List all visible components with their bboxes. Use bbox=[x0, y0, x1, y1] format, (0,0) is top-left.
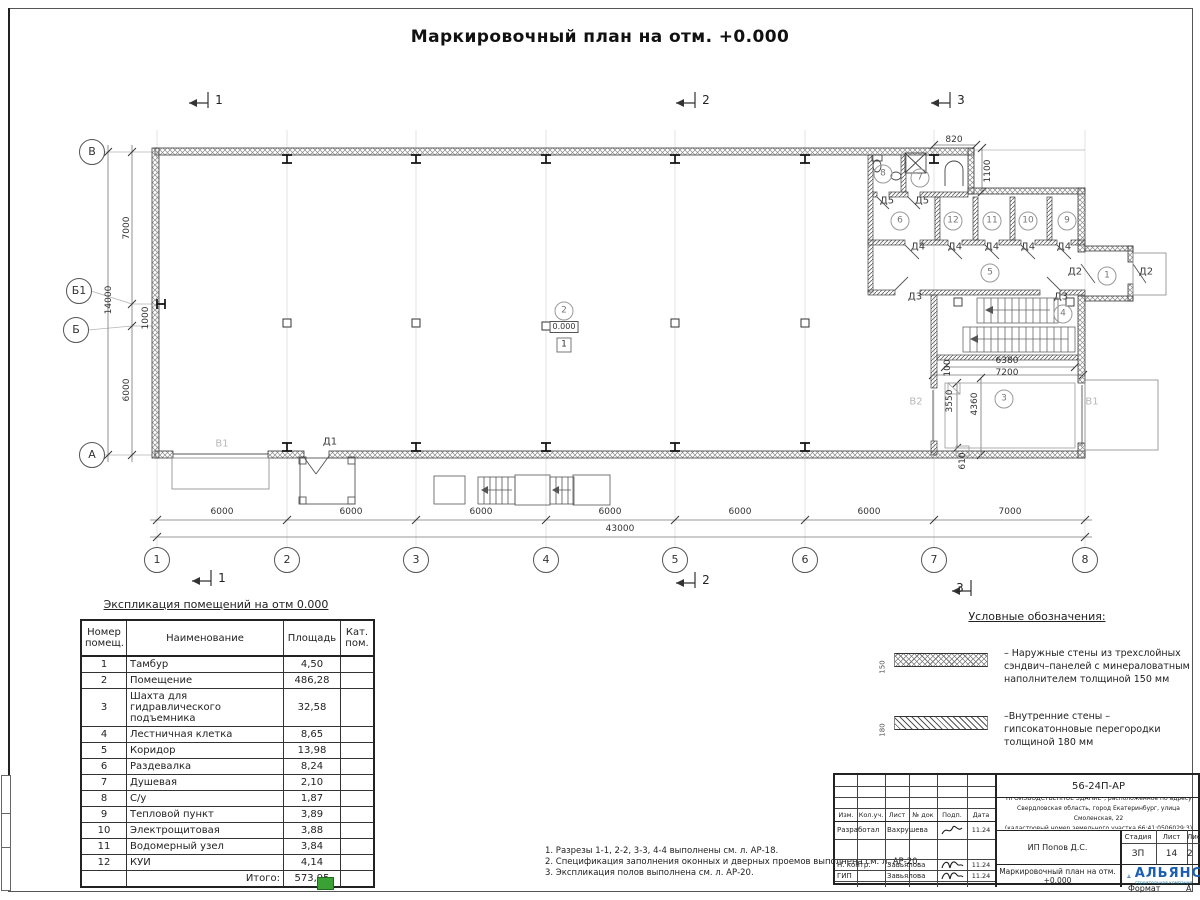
exterior-walls bbox=[152, 148, 1133, 458]
room-area: 13,98 bbox=[284, 743, 341, 759]
wc-fixtures bbox=[872, 153, 963, 186]
legend-line: гипсокатонновые перегородки bbox=[1004, 723, 1161, 736]
company-logo: АЛЬЯНС строительная компания bbox=[1127, 867, 1200, 885]
signature-icon bbox=[939, 821, 965, 839]
sign-name: Вахрушева bbox=[887, 821, 937, 839]
legend-line: сэндвич–панелей с минераловатным bbox=[1004, 660, 1190, 673]
legend-line: наполнителем толщиной 150 мм bbox=[1004, 673, 1190, 686]
room-schedule-body: 1Тамбур4,502Помещение486,283Шахта для ги… bbox=[81, 656, 374, 887]
room-area: 8,24 bbox=[284, 759, 341, 775]
legend-item-exterior-wall: 150 – Наружные стены из трехслойных сэнд… bbox=[878, 647, 1196, 686]
room-area: 4,14 bbox=[284, 855, 341, 871]
section-arrow bbox=[189, 99, 197, 107]
stair-arrow bbox=[970, 335, 978, 343]
table-row: 10Электрощитовая3,88 bbox=[81, 823, 374, 839]
room-name: Тамбур bbox=[127, 656, 284, 673]
room-category bbox=[341, 791, 375, 807]
title-block: Изм. Кол.уч. Лист № док Подп. Дата Разра… bbox=[833, 773, 1200, 885]
loading-dock bbox=[172, 458, 269, 489]
room-name: Раздевалка bbox=[127, 759, 284, 775]
room-name: Лестничная клетка bbox=[127, 727, 284, 743]
logo-name: АЛЬЯНС bbox=[1135, 867, 1200, 881]
room-number: 3 bbox=[81, 689, 127, 727]
dimension-lines bbox=[108, 145, 1092, 537]
sign-name: Завьялова bbox=[887, 870, 937, 881]
legend-text: – Наружные стены из трехслойных сэндвич–… bbox=[1004, 647, 1190, 686]
arch-niche bbox=[945, 161, 963, 186]
legend-title: Условные обозначения: bbox=[878, 610, 1196, 623]
sign-date: 11.24 bbox=[967, 859, 995, 870]
section-arrow bbox=[676, 99, 684, 107]
room-schedule-table: Номер помещ. Наименование Площадь Кат. п… bbox=[80, 619, 375, 888]
table-row: 8С/у1,87 bbox=[81, 791, 374, 807]
toilet-icon bbox=[873, 160, 881, 172]
project-description: "ПРОИЗВОДСТВЕННОЕ ЗДАНИЕ", расположенное… bbox=[997, 798, 1200, 829]
stair-arrow bbox=[985, 306, 993, 314]
column-header-area: Площадь bbox=[284, 620, 341, 656]
table-row: 2Помещение486,28 bbox=[81, 673, 374, 689]
room-number: 10 bbox=[81, 823, 127, 839]
col-ndok: № док bbox=[909, 808, 937, 821]
legend-dim: 180 bbox=[879, 723, 887, 736]
room-number: 6 bbox=[81, 759, 127, 775]
room-category bbox=[341, 689, 375, 727]
room-category bbox=[341, 807, 375, 823]
format-value: А bbox=[1186, 884, 1191, 893]
sheets-label: Листов bbox=[1187, 830, 1200, 843]
room-number: 5 bbox=[81, 743, 127, 759]
stage-label: Стадия bbox=[1120, 830, 1156, 843]
room-name: С/у bbox=[127, 791, 284, 807]
room-number: 8 bbox=[81, 791, 127, 807]
col-data: Дата bbox=[967, 808, 995, 821]
format-label: Формат bbox=[1128, 884, 1160, 893]
stair-arrow bbox=[481, 486, 488, 494]
sign-date: 11.24 bbox=[967, 870, 995, 881]
margin-box bbox=[1, 813, 11, 849]
interior-partitions bbox=[868, 155, 1085, 455]
legend-line: толщиной 180 мм bbox=[1004, 736, 1161, 749]
room-area: 3,84 bbox=[284, 839, 341, 855]
legend-line: – Наружные стены из трехслойных bbox=[1004, 647, 1190, 660]
legend-item-interior-wall: 180 –Внутренние стены – гипсокатонновые … bbox=[878, 710, 1196, 749]
room-name: КУИ bbox=[127, 855, 284, 871]
room-category bbox=[341, 673, 375, 689]
column-header-category: Кат. пом. bbox=[341, 620, 375, 656]
column-header-number: Номер помещ. bbox=[81, 620, 127, 656]
margin-box bbox=[1, 847, 11, 891]
room-number: 2 bbox=[81, 673, 127, 689]
signature-icon bbox=[939, 859, 965, 870]
room-number: 7 bbox=[81, 775, 127, 791]
room-category bbox=[341, 727, 375, 743]
logo-triangle-icon bbox=[1127, 868, 1131, 884]
sign-name: Завьялова bbox=[887, 859, 937, 870]
legend-line: –Внутренние стены – bbox=[1004, 710, 1161, 723]
table-row: 9Тепловой пункт3,89 bbox=[81, 807, 374, 823]
cabinet bbox=[1066, 298, 1074, 306]
table-row: 12КУИ4,14 bbox=[81, 855, 374, 871]
lift-shaft-pit bbox=[945, 383, 1075, 456]
room-area: 3,89 bbox=[284, 807, 341, 823]
signature-icon bbox=[939, 870, 965, 881]
sink-icon bbox=[891, 172, 901, 180]
entrance-canopy bbox=[299, 457, 355, 504]
legend: Условные обозначения: 150 – Наружные сте… bbox=[878, 610, 1196, 749]
client-name: ИП Попов Д.С. bbox=[995, 830, 1120, 864]
room-category bbox=[341, 855, 375, 871]
table-row: 4Лестничная клетка8,65 bbox=[81, 727, 374, 743]
room-area: 32,58 bbox=[284, 689, 341, 727]
loading-dock-right bbox=[1085, 380, 1158, 450]
total-label: Итого: bbox=[127, 871, 284, 888]
room-area: 486,28 bbox=[284, 673, 341, 689]
floor-plan-drawing bbox=[0, 0, 1200, 620]
door-swings bbox=[173, 197, 1146, 474]
room-number: 9 bbox=[81, 807, 127, 823]
section-arrow bbox=[952, 587, 960, 595]
room-area: 4,50 bbox=[284, 656, 341, 673]
drawing-sheet: Маркировочный план на отм. +0.000 bbox=[0, 0, 1200, 900]
room-name: Шахта для гидравлического подъемника bbox=[127, 689, 284, 727]
room-category bbox=[341, 823, 375, 839]
table-row: 11Водомерный узел3,84 bbox=[81, 839, 374, 855]
interior-wall-swatch bbox=[894, 716, 988, 730]
cabinet bbox=[954, 298, 962, 306]
room-category bbox=[341, 743, 375, 759]
desc-line: (кадастровый номер земельного участка 66… bbox=[1005, 824, 1192, 830]
room-number: 11 bbox=[81, 839, 127, 855]
sign-role: ГИП bbox=[837, 870, 885, 881]
section-marks bbox=[189, 92, 971, 596]
room-area: 1,87 bbox=[284, 791, 341, 807]
total-spacer bbox=[81, 871, 127, 888]
sheet-number: 14 bbox=[1156, 843, 1187, 864]
room-name: Водомерный узел bbox=[127, 839, 284, 855]
stairs-interior bbox=[963, 298, 1075, 352]
room-category bbox=[341, 656, 375, 673]
col-list: Лист bbox=[885, 808, 909, 821]
document-code: 56-24П-АР bbox=[995, 775, 1200, 797]
drawing-title: Маркировочный план на отм. +0.000 bbox=[995, 864, 1120, 887]
exterior-wall-swatch bbox=[894, 653, 988, 667]
legend-dim: 150 bbox=[879, 660, 887, 673]
room-number: 4 bbox=[81, 727, 127, 743]
table-row: 5Коридор13,98 bbox=[81, 743, 374, 759]
sign-role: Разработал bbox=[837, 821, 885, 839]
stair-arrow bbox=[552, 486, 559, 494]
section-arrow bbox=[676, 579, 684, 587]
section-arrow bbox=[931, 99, 939, 107]
entry-porch bbox=[1133, 253, 1166, 295]
room-name: Коридор bbox=[127, 743, 284, 759]
sheet-label: Лист bbox=[1156, 830, 1187, 843]
room-category bbox=[341, 759, 375, 775]
section-arrow bbox=[192, 577, 200, 585]
room-name: Электрощитовая bbox=[127, 823, 284, 839]
desc-line: Свердловская область, город Екатеринбург… bbox=[997, 804, 1200, 824]
table-row: 3Шахта для гидравлического подъемника32,… bbox=[81, 689, 374, 727]
col-izm: Изм. bbox=[835, 808, 857, 821]
margin-box bbox=[1, 775, 11, 815]
room-name: Тепловой пункт bbox=[127, 807, 284, 823]
dimension-ticks bbox=[104, 141, 1089, 541]
room-schedule: Экспликация помещений на отм 0.000 Номер… bbox=[80, 598, 352, 888]
room-name: Душевая bbox=[127, 775, 284, 791]
stage-value: ЗП bbox=[1120, 843, 1156, 864]
col-podp: Подп. bbox=[937, 808, 967, 821]
green-marker bbox=[317, 877, 334, 890]
table-row: 7Душевая2,10 bbox=[81, 775, 374, 791]
sign-role: Н. контр. bbox=[837, 859, 885, 870]
col-koluch: Кол.уч. bbox=[857, 808, 885, 821]
table-row: 1Тамбур4,50 bbox=[81, 656, 374, 673]
room-area: 2,10 bbox=[284, 775, 341, 791]
room-number: 12 bbox=[81, 855, 127, 871]
room-number: 1 bbox=[81, 656, 127, 673]
exterior-stairs bbox=[434, 475, 610, 505]
room-area: 8,65 bbox=[284, 727, 341, 743]
room-schedule-title: Экспликация помещений на отм 0.000 bbox=[80, 598, 352, 611]
total-category bbox=[341, 871, 375, 888]
room-area: 3,88 bbox=[284, 823, 341, 839]
steel-columns bbox=[157, 155, 939, 451]
table-row: 6Раздевалка8,24 bbox=[81, 759, 374, 775]
room-category bbox=[341, 775, 375, 791]
sign-date: 11.24 bbox=[967, 821, 995, 839]
room-category bbox=[341, 839, 375, 855]
room-name: Помещение bbox=[127, 673, 284, 689]
column-header-name: Наименование bbox=[127, 620, 284, 656]
legend-text: –Внутренние стены – гипсокатонновые пере… bbox=[1004, 710, 1161, 749]
sheets-total: 2 bbox=[1187, 843, 1200, 864]
